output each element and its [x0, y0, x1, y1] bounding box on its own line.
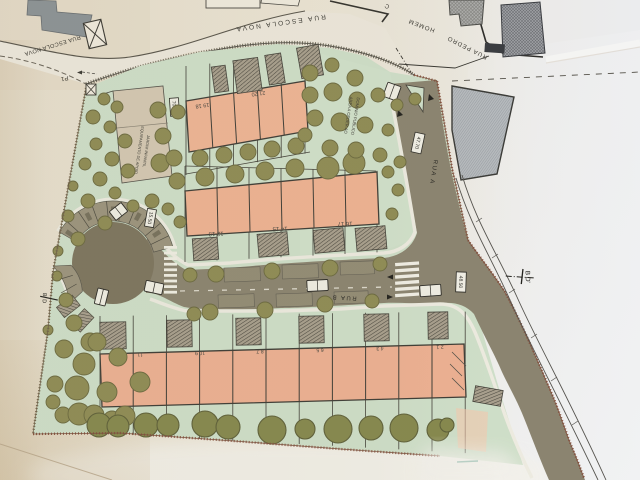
svg-text:B D': B D': [524, 271, 531, 283]
